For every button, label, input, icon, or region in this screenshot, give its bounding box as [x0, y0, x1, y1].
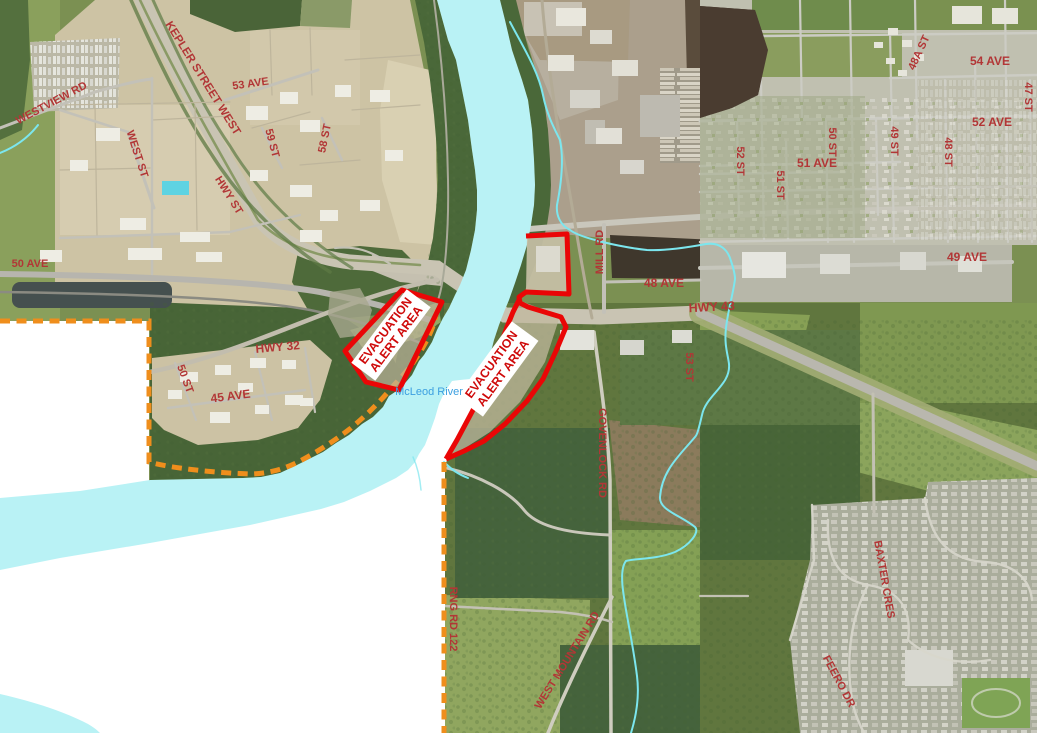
svg-text:MILL RD: MILL RD	[594, 230, 606, 274]
svg-text:52 AVE: 52 AVE	[972, 115, 1012, 129]
svg-text:49 ST: 49 ST	[888, 126, 900, 156]
svg-text:50 ST: 50 ST	[826, 127, 838, 157]
svg-text:HWY 43: HWY 43	[688, 299, 735, 315]
svg-text:53 ST: 53 ST	[683, 352, 695, 382]
svg-text:RNG RD 122: RNG RD 122	[447, 587, 459, 652]
svg-text:51 ST: 51 ST	[774, 170, 786, 200]
svg-text:48 AVE: 48 AVE	[644, 276, 684, 290]
svg-text:McLeod River: McLeod River	[395, 386, 463, 398]
svg-text:54 AVE: 54 AVE	[970, 54, 1010, 68]
svg-text:GOVENLOCK RD: GOVENLOCK RD	[596, 408, 608, 498]
svg-text:50 AVE: 50 AVE	[12, 258, 49, 270]
svg-text:52 ST: 52 ST	[734, 146, 746, 176]
svg-text:49 AVE: 49 AVE	[947, 250, 987, 264]
svg-text:47 ST: 47 ST	[1022, 82, 1034, 112]
svg-text:51 AVE: 51 AVE	[797, 156, 837, 170]
svg-text:48 ST: 48 ST	[942, 137, 954, 167]
